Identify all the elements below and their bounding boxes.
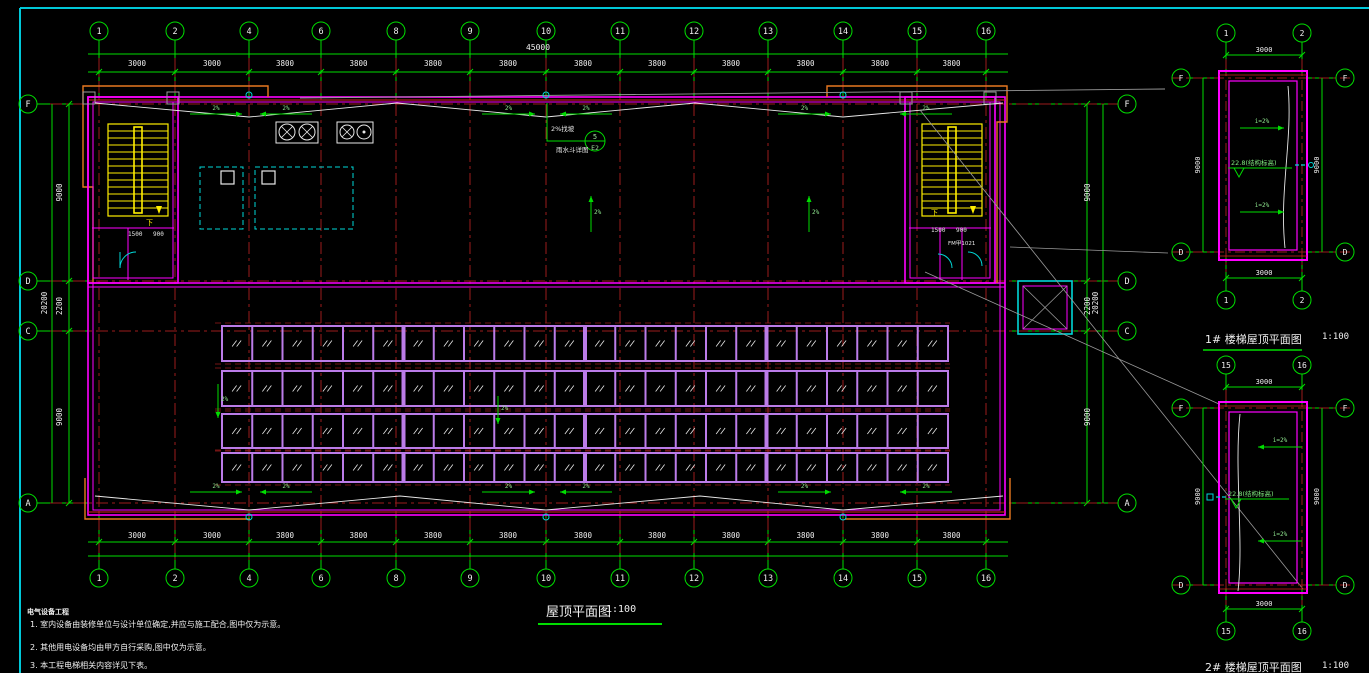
grid-bubble-label: 2 xyxy=(172,574,177,584)
callout-detail-number: 5 xyxy=(593,133,597,141)
panel-hatch xyxy=(807,386,812,392)
detail-grid-label: 1 xyxy=(1224,29,1229,38)
detail-row-label: F xyxy=(1343,74,1348,83)
grid-bubble-label: 16 xyxy=(981,574,991,584)
grid-bubble-label: 15 xyxy=(912,574,922,584)
panel-hatch xyxy=(600,465,605,471)
slope-arrow-label: 2% xyxy=(212,105,220,112)
grid-bubble-label: 13 xyxy=(763,574,773,584)
cad-drawing-canvas[interactable]: 1122446688991010111112121313141415151616… xyxy=(0,0,1369,673)
panel-hatch xyxy=(656,465,661,471)
panel-hatch xyxy=(686,341,691,347)
panel-hatch xyxy=(262,341,267,347)
panel-hatch xyxy=(358,428,363,434)
right-core-dim-900: 900 xyxy=(956,227,967,234)
panel-hatch xyxy=(842,341,847,347)
bay-dimension: 3800 xyxy=(796,59,815,68)
right-core-dim-1500: 1500 xyxy=(931,227,946,234)
detail-grid-label: 2 xyxy=(1300,296,1305,305)
slope-arrow-label: 2% xyxy=(505,105,513,112)
detail-row-label: F xyxy=(1343,404,1348,413)
row-bubble-label: A xyxy=(25,499,30,509)
note-line-1: 1. 室内设备由装修单位与设计单位确定,并应与施工配合,图中仅为示意。 xyxy=(30,619,285,629)
bay-dimension: 3800 xyxy=(276,59,295,68)
row-bubble-label: A xyxy=(1124,499,1129,509)
panel-hatch xyxy=(569,386,574,392)
bay-dimension: 3000 xyxy=(203,531,222,540)
panel-hatch xyxy=(418,341,423,347)
panel-hatch xyxy=(872,428,877,434)
panel-hatch xyxy=(267,386,272,392)
panel-hatch xyxy=(721,465,726,471)
panel-hatch xyxy=(781,341,786,347)
grid-bubble-label: 13 xyxy=(763,27,773,37)
slope-arrow-label: 2% xyxy=(801,483,809,490)
panel-hatch xyxy=(358,465,363,471)
detail-slope-arrow-head xyxy=(1258,445,1264,450)
panel-hatch xyxy=(297,341,302,347)
slope-arrow-label: 2% xyxy=(282,105,290,112)
note-line-3: 3. 本工程电梯相关内容详见下表。 xyxy=(30,660,152,670)
panel-hatch xyxy=(504,386,509,392)
grid-bubble-label: 2 xyxy=(172,27,177,37)
panel-hatch xyxy=(630,428,635,434)
panel-hatch xyxy=(414,465,419,471)
overall-dimension: 45000 xyxy=(526,43,550,52)
detail-row-label: D xyxy=(1179,581,1184,590)
bay-dimension: 3800 xyxy=(276,531,295,540)
panel-hatch xyxy=(262,428,267,434)
bay-dimension: 3800 xyxy=(349,531,368,540)
panel-hatch xyxy=(625,428,630,434)
detail-row-label: D xyxy=(1343,248,1348,257)
slope-arrow-head xyxy=(260,490,266,495)
panel-hatch xyxy=(656,386,661,392)
panel-hatch xyxy=(716,341,721,347)
slope-arrow-head xyxy=(900,490,906,495)
panel-hatch xyxy=(751,428,756,434)
left-core-dim-900: 900 xyxy=(153,231,164,238)
bay-dimension: 3800 xyxy=(349,59,368,68)
bay-dimension: 3800 xyxy=(871,59,890,68)
panel-hatch xyxy=(932,386,937,392)
slope-arrow-label: 2% xyxy=(801,105,809,112)
panel-hatch xyxy=(358,341,363,347)
panel-hatch xyxy=(237,341,242,347)
panel-hatch xyxy=(716,465,721,471)
detail-dimension: 9000 xyxy=(1313,488,1321,505)
grid-bubble-label: 8 xyxy=(393,574,398,584)
detail-slope-label: i=2% xyxy=(1255,202,1270,209)
detail-dimension: 9000 xyxy=(1194,157,1202,174)
grid-bubble-label: 8 xyxy=(393,27,398,37)
main-title-scale: 1:100 xyxy=(606,604,636,615)
notes-header: 电气设备工程 xyxy=(27,607,69,616)
panel-hatch xyxy=(837,465,842,471)
panel-hatch xyxy=(777,341,782,347)
row-dimension: 9000 xyxy=(55,183,64,202)
panel-hatch xyxy=(898,341,903,347)
bay-dimension: 3800 xyxy=(499,59,518,68)
row-dimension: 9000 xyxy=(1083,407,1092,426)
grid-bubble-label: 1 xyxy=(96,574,101,584)
panel-hatch xyxy=(656,341,661,347)
panel-hatch xyxy=(479,341,484,347)
panel-hatch xyxy=(898,428,903,434)
panel-hatch xyxy=(418,465,423,471)
panel-hatch xyxy=(535,386,540,392)
row-overall-dimension: 20200 xyxy=(1091,291,1100,314)
detail-drain-mark xyxy=(1207,494,1213,500)
door-tag: FM甲1021 xyxy=(948,240,975,247)
panel-hatch xyxy=(237,465,242,471)
panel-hatch xyxy=(262,386,267,392)
panel-hatch xyxy=(327,386,332,392)
bay-dimension: 3800 xyxy=(796,531,815,540)
panel-hatch xyxy=(474,465,479,471)
bay-dimension: 3800 xyxy=(499,531,518,540)
panel-hatch xyxy=(656,428,661,434)
panel-hatch xyxy=(353,341,358,347)
bay-dimension: 3800 xyxy=(574,531,593,540)
panel-hatch xyxy=(383,428,388,434)
bay-dimension: 3800 xyxy=(424,531,443,540)
plan-linework: 1122446688991010111112121313141415151616… xyxy=(19,22,1354,640)
panel-hatch xyxy=(902,386,907,392)
panel-hatch xyxy=(565,341,570,347)
panel-hatch xyxy=(448,341,453,347)
panel-hatch xyxy=(625,386,630,392)
panel-hatch xyxy=(751,386,756,392)
panel-hatch xyxy=(479,386,484,392)
panel-hatch xyxy=(358,386,363,392)
panel-hatch xyxy=(237,386,242,392)
panel-hatch xyxy=(902,428,907,434)
equipment-unit xyxy=(262,171,275,184)
detail-grid-label: 16 xyxy=(1297,361,1307,370)
panel-hatch xyxy=(323,386,328,392)
grid-bubble-label: 9 xyxy=(467,574,472,584)
panel-hatch xyxy=(383,386,388,392)
row-bubble-label: C xyxy=(25,327,30,337)
panel-hatch xyxy=(746,341,751,347)
panel-hatch xyxy=(600,341,605,347)
detail2-level-text: 22.8(结构标高) xyxy=(1228,489,1274,498)
panel-hatch xyxy=(383,341,388,347)
slope-arrow-label: 2% xyxy=(922,105,930,112)
panel-hatch xyxy=(444,428,449,434)
panel-hatch xyxy=(746,386,751,392)
parapet-bottom-left xyxy=(85,478,250,519)
row-bubble-label: C xyxy=(1124,327,1129,337)
panel-hatch xyxy=(660,428,665,434)
panel-hatch xyxy=(323,428,328,434)
panel-hatch xyxy=(414,386,419,392)
detail2-scale: 1:100 xyxy=(1322,661,1349,671)
bay-dimension: 3000 xyxy=(128,59,147,68)
panel-hatch xyxy=(867,428,872,434)
panel-hatch xyxy=(444,341,449,347)
notes-block: 电气设备工程 1. 室内设备由装修单位与设计单位确定,并应与施工配合,图中仅为示… xyxy=(27,607,285,670)
callout-slope-note: 2%找坡 xyxy=(551,124,575,133)
row-dimension: 2200 xyxy=(55,296,64,315)
stair-tower-wall-inner xyxy=(93,102,173,278)
slope-arrow-head xyxy=(807,196,812,202)
panel-hatch xyxy=(509,428,514,434)
slope-arrow-label: 2% xyxy=(582,105,590,112)
grid-bubble-label: 16 xyxy=(981,27,991,37)
panel-hatch xyxy=(595,428,600,434)
grid-bubble-label: 11 xyxy=(615,574,625,584)
panel-hatch xyxy=(388,386,393,392)
panel-hatch xyxy=(872,465,877,471)
panel-hatch xyxy=(867,386,872,392)
panel-hatch xyxy=(932,428,937,434)
detail2-title-block: 2# 楼梯屋顶平面图 1:100 xyxy=(1205,660,1349,673)
detail-grid-label: 15 xyxy=(1221,361,1231,370)
detail-slope-label: i=2% xyxy=(1273,437,1288,444)
slope-arrow-head xyxy=(216,412,221,418)
detail-row-label: D xyxy=(1343,581,1348,590)
panel-hatch xyxy=(811,428,816,434)
panel-hatch xyxy=(414,428,419,434)
bay-dimension: 3800 xyxy=(574,59,593,68)
panel-hatch xyxy=(630,465,635,471)
grid-bubble-label: 12 xyxy=(689,27,699,37)
panel-hatch xyxy=(293,428,298,434)
panel-hatch xyxy=(535,341,540,347)
panel-hatch xyxy=(716,428,721,434)
callout-sheet-number: E2 xyxy=(591,144,599,152)
detail1-scale: 1:100 xyxy=(1322,332,1349,342)
roof-drain-line xyxy=(95,103,1003,117)
panel-hatch xyxy=(872,341,877,347)
panel-hatch xyxy=(746,428,751,434)
panel-hatch xyxy=(867,465,872,471)
detail-dimension: 9000 xyxy=(1194,488,1202,505)
panel-hatch xyxy=(721,386,726,392)
panel-hatch xyxy=(535,465,540,471)
panel-hatch xyxy=(539,341,544,347)
main-title-block: 屋顶平面图 1:100 xyxy=(538,604,662,624)
panel-hatch xyxy=(600,386,605,392)
panel-hatch xyxy=(474,386,479,392)
right-stair-down-label: 下 xyxy=(931,209,938,217)
left-core-dim-1500: 1500 xyxy=(128,231,143,238)
detail1-title-block: 1# 楼梯屋顶平面图 1:100 xyxy=(1203,332,1349,350)
panel-hatch xyxy=(660,341,665,347)
panel-hatch xyxy=(232,465,237,471)
bay-dimension: 3000 xyxy=(128,531,147,540)
panel-hatch xyxy=(353,386,358,392)
stair-stringer xyxy=(134,127,142,213)
panel-hatch xyxy=(448,465,453,471)
slope-arrow-label: 2% xyxy=(501,405,509,412)
grid-bubble-label: 4 xyxy=(246,574,251,584)
bay-dimension: 3800 xyxy=(648,531,667,540)
panel-hatch xyxy=(807,341,812,347)
detail-drain-curve xyxy=(1283,86,1289,248)
detail-row-label: F xyxy=(1179,404,1184,413)
panel-hatch xyxy=(811,386,816,392)
stair-direction-arrow xyxy=(156,206,162,214)
panel-hatch xyxy=(474,341,479,347)
equipment-pad xyxy=(255,167,353,229)
slope-arrow-label: 2% xyxy=(505,483,513,490)
panel-hatch xyxy=(565,428,570,434)
detail-dimension: 3000 xyxy=(1256,600,1273,608)
grid-bubble-label: 10 xyxy=(541,27,551,37)
bay-dimension: 3800 xyxy=(942,59,961,68)
slope-arrow-label: 2% xyxy=(221,396,229,403)
note-line-2: 2. 其他用电设备均由甲方自行采购,图中仅为示意。 xyxy=(30,642,211,652)
row-overall-dimension: 20200 xyxy=(40,291,49,314)
panel-hatch xyxy=(388,341,393,347)
detail-row-label: D xyxy=(1179,248,1184,257)
panel-hatch xyxy=(323,465,328,471)
panel-hatch xyxy=(474,428,479,434)
panel-hatch xyxy=(686,465,691,471)
panel-hatch xyxy=(928,386,933,392)
panel-hatch xyxy=(418,386,423,392)
panel-hatch xyxy=(232,386,237,392)
panel-hatch xyxy=(509,386,514,392)
left-stair-down-label: 下 xyxy=(146,219,153,227)
panel-hatch xyxy=(267,465,272,471)
panel-hatch xyxy=(293,341,298,347)
panel-hatch xyxy=(811,465,816,471)
panel-hatch xyxy=(932,341,937,347)
panel-hatch xyxy=(716,386,721,392)
slope-arrow-head xyxy=(825,490,831,495)
detail-dimension: 9000 xyxy=(1313,157,1321,174)
panel-hatch xyxy=(444,465,449,471)
cad-viewport[interactable]: 1122446688991010111112121313141415151616… xyxy=(0,0,1369,673)
grid-bubble-label: 9 xyxy=(467,27,472,37)
door-swing xyxy=(968,252,982,266)
grid-bubble-label: 4 xyxy=(246,27,251,37)
panel-hatch xyxy=(504,341,509,347)
stair-stringer xyxy=(948,127,956,213)
panel-hatch xyxy=(898,465,903,471)
panel-hatch xyxy=(928,465,933,471)
panel-hatch xyxy=(444,386,449,392)
panel-hatch xyxy=(327,465,332,471)
slope-arrow-label: 2% xyxy=(582,483,590,490)
panel-hatch xyxy=(388,465,393,471)
panel-hatch xyxy=(297,386,302,392)
panel-hatch xyxy=(569,465,574,471)
panel-hatch xyxy=(811,341,816,347)
grid-bubble-label: 14 xyxy=(838,574,848,584)
panel-hatch xyxy=(630,341,635,347)
row-dimension: 9000 xyxy=(55,407,64,426)
grid-bubble-label: 1 xyxy=(96,27,101,37)
bay-dimension: 3800 xyxy=(871,531,890,540)
detail-dimension: 3000 xyxy=(1256,378,1273,386)
detail-slope-label: i=2% xyxy=(1255,118,1270,125)
panel-hatch xyxy=(232,428,237,434)
panel-hatch xyxy=(777,386,782,392)
panel-hatch xyxy=(842,428,847,434)
panel-hatch xyxy=(293,386,298,392)
panel-hatch xyxy=(595,341,600,347)
drain-callout: 5 E2 2%找坡 雨水斗详图 xyxy=(547,103,605,154)
detail-slope-arrow-head xyxy=(1258,539,1264,544)
panel-hatch xyxy=(297,465,302,471)
detail-dimension: 3000 xyxy=(1256,46,1273,54)
panel-hatch xyxy=(504,428,509,434)
row-bubble-label: D xyxy=(25,277,30,287)
detail-grid-label: 2 xyxy=(1300,29,1305,38)
panel-hatch xyxy=(660,465,665,471)
detail-grid-label: 1 xyxy=(1224,296,1229,305)
panel-hatch xyxy=(418,428,423,434)
panel-hatch xyxy=(323,341,328,347)
grid-bubble-label: 11 xyxy=(615,27,625,37)
panel-hatch xyxy=(746,465,751,471)
bay-dimension: 3800 xyxy=(942,531,961,540)
panel-hatch xyxy=(539,428,544,434)
grid-bubble-label: 10 xyxy=(541,574,551,584)
panel-hatch xyxy=(353,428,358,434)
panel-hatch xyxy=(595,386,600,392)
panel-hatch xyxy=(267,341,272,347)
panel-hatch xyxy=(479,428,484,434)
bay-dimension: 3800 xyxy=(722,531,741,540)
slope-arrow-head xyxy=(529,490,535,495)
panel-hatch xyxy=(448,428,453,434)
panel-hatch xyxy=(625,341,630,347)
slope-arrow-label: 2% xyxy=(594,209,602,216)
panel-hatch xyxy=(353,465,358,471)
row-bubble-label: F xyxy=(25,100,30,110)
panel-hatch xyxy=(932,465,937,471)
panel-hatch xyxy=(600,428,605,434)
panel-hatch xyxy=(842,465,847,471)
fan-hub xyxy=(363,131,366,134)
grid-bubble-label: 6 xyxy=(318,27,323,37)
panel-hatch xyxy=(751,465,756,471)
panel-hatch xyxy=(293,465,298,471)
panel-hatch xyxy=(630,386,635,392)
panel-hatch xyxy=(721,428,726,434)
slope-arrow-head xyxy=(496,418,501,424)
panel-hatch xyxy=(837,386,842,392)
panel-hatch xyxy=(297,428,302,434)
bay-dimension: 3800 xyxy=(424,59,443,68)
panel-hatch xyxy=(781,465,786,471)
bay-dimension: 3800 xyxy=(722,59,741,68)
panel-hatch xyxy=(267,428,272,434)
panel-hatch xyxy=(539,386,544,392)
panel-hatch xyxy=(388,428,393,434)
bay-dimension: 3000 xyxy=(203,59,222,68)
panel-hatch xyxy=(565,465,570,471)
panel-hatch xyxy=(902,341,907,347)
slope-arrow-head xyxy=(236,490,242,495)
row-dimension: 9000 xyxy=(1083,183,1092,202)
panel-hatch xyxy=(448,386,453,392)
detail1-level-text: 22.8(结构标高) xyxy=(1231,158,1277,167)
row-bubble-label: F xyxy=(1124,100,1129,110)
equipment-unit xyxy=(221,171,234,184)
panel-hatch xyxy=(867,341,872,347)
panel-hatch xyxy=(539,465,544,471)
detail-grid-label: 16 xyxy=(1297,627,1307,636)
panel-hatch xyxy=(777,428,782,434)
panel-hatch xyxy=(807,428,812,434)
